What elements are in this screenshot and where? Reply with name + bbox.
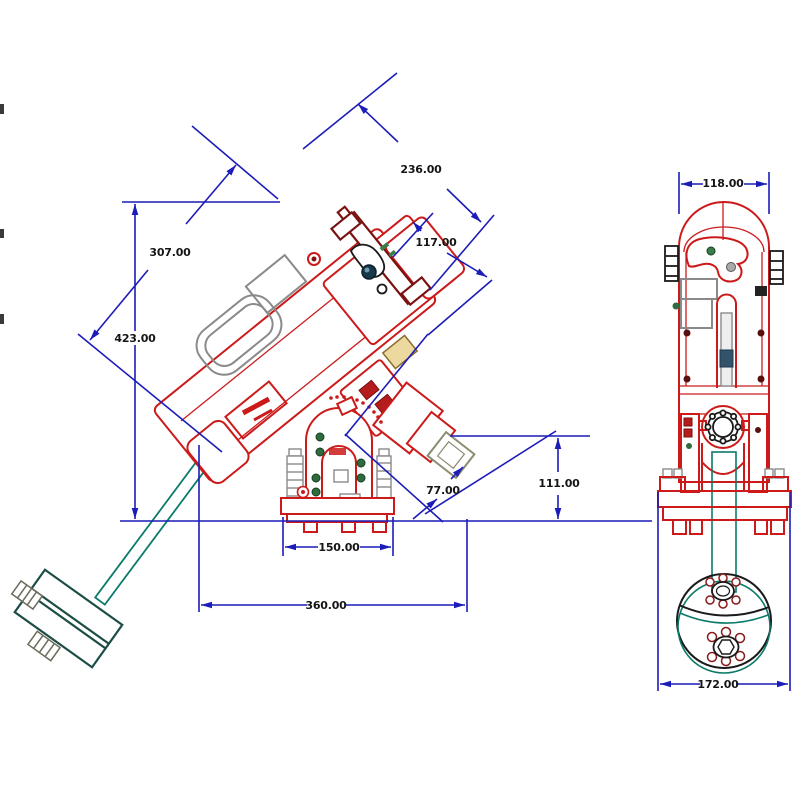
altitude-bolt-icon <box>377 449 391 500</box>
clamp-knob-icon <box>362 265 376 279</box>
dim-label-360: 360.00 <box>305 599 347 612</box>
dim-label-423: 423.00 <box>114 332 156 345</box>
dim-label-307: 307.00 <box>149 246 191 259</box>
counterweight-disks-front <box>677 574 771 673</box>
front-view <box>658 202 791 673</box>
screw-icon <box>707 247 715 255</box>
bolt-icon <box>758 376 765 383</box>
latitude-knob-icon <box>665 246 678 281</box>
leveling-foot-icon <box>755 520 767 534</box>
brand-tag <box>329 448 346 455</box>
dim-label-117: 117.00 <box>415 236 457 249</box>
leveling-foot-icon <box>373 522 386 532</box>
bolt-icon <box>758 330 765 337</box>
leveling-foot-icon <box>771 520 784 534</box>
dim-label-150: 150.00 <box>318 541 360 554</box>
leveling-foot-icon <box>342 522 355 532</box>
dimension-111: 111.00 <box>450 436 590 519</box>
leveling-foot-icon <box>304 522 317 532</box>
dim-label-118: 118.00 <box>702 177 744 190</box>
dimension-77: 77.00 <box>413 467 463 519</box>
base-plate <box>281 498 394 514</box>
dim-label-172: 172.00 <box>697 678 739 691</box>
leveling-foot-icon <box>690 520 702 534</box>
dim-label-111: 111.00 <box>538 477 580 490</box>
bolt-icon <box>684 376 691 383</box>
dim-label-236: 236.00 <box>400 163 442 176</box>
counterweight-hub-icon <box>708 628 745 666</box>
drawing-canvas: 423.00 307.00 236.00 117.00 <box>0 0 800 800</box>
leveling-foot-icon <box>673 520 686 534</box>
dim-label-77: 77.00 <box>426 484 460 497</box>
counterweight-hub-icon <box>706 574 740 608</box>
bolt-icon <box>673 303 680 310</box>
slot-weight-icon <box>720 350 733 367</box>
bolt-icon <box>755 286 767 296</box>
edge-artifacts <box>0 104 4 324</box>
screw-icon <box>727 263 736 272</box>
mount-dimension-diagram: 423.00 307.00 236.00 117.00 <box>0 0 800 800</box>
side-view <box>12 207 475 667</box>
latitude-knob-icon <box>770 251 783 284</box>
bolt-icon <box>684 330 691 337</box>
clamp-ring-icon <box>705 410 740 443</box>
